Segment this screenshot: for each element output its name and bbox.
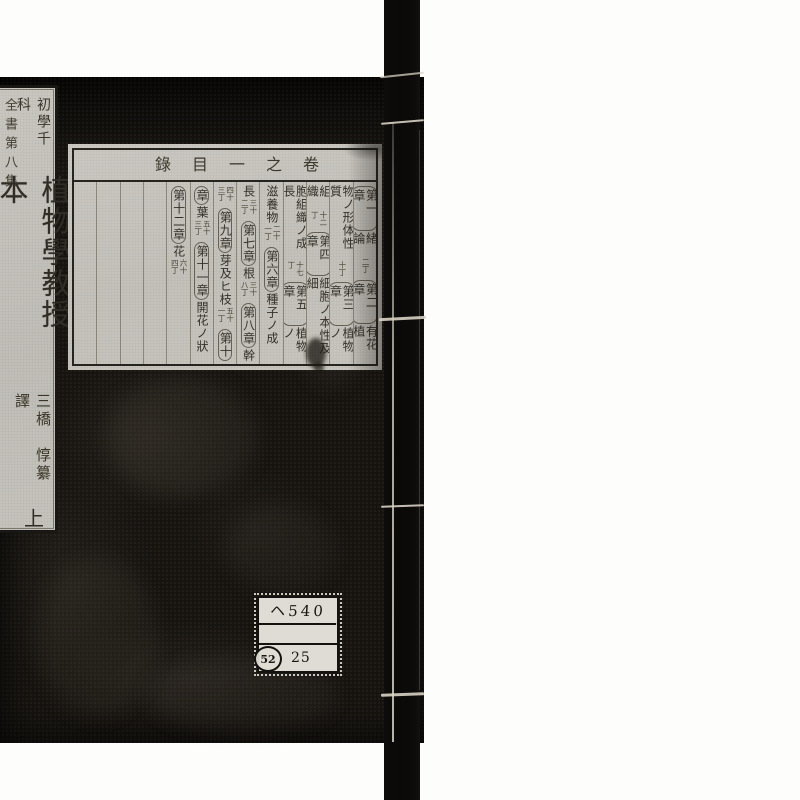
toc-title-text: 卷之一目錄	[155, 155, 340, 174]
toc-column-7: 四十三丁 第九章 芽及ヒ枝 五十一丁 第十	[213, 182, 236, 364]
author-translator: 三橋 惇纂譯	[12, 393, 54, 499]
toc-column-8: 章 葉 五十三丁 第十一章 開花ノ狀	[190, 182, 213, 364]
chapter-title: 有花植	[353, 325, 376, 364]
toc-column-1: 第一章 緒論 二丁 第二章 有花植	[353, 182, 376, 364]
chapter-title: 開花ノ狀	[195, 301, 208, 353]
chapter-token: 第八章	[241, 303, 256, 348]
toc-column-9: 第十二章 花 六十四丁	[166, 182, 189, 364]
toc-column-6: 長 三十二丁 第七章 根 三十八丁 第八章 幹	[236, 182, 259, 364]
chapter-token: 第二章	[353, 280, 376, 325]
toc-column-5: 滋養物 二十一丁 第六章 種子ノ成	[259, 182, 282, 364]
chapter-title: 胞組織ノ成長	[283, 185, 306, 260]
title-label-inner-border: 全書第八集 初學千科 植物學教授本 三橋 惇纂譯 上	[0, 89, 54, 529]
toc-label: 卷之一目錄 第一章 緒論 二丁 第二章 有花植 物ノ形体性質 十丁 第三章 植物…	[68, 144, 382, 370]
chapter-token: 第十二章	[171, 186, 186, 244]
toc-column-4: 胞組織ノ成長 十七丁 第五章 植物ノ	[283, 182, 306, 364]
worn-patch	[37, 557, 157, 717]
chapter-title: 物ノ形体性質	[329, 185, 352, 260]
chapter-token: 第四章	[306, 232, 329, 275]
page-note: 三十二丁	[240, 199, 257, 219]
chapter-title: 長	[242, 185, 255, 198]
page-note: 十七丁	[286, 261, 303, 280]
chapter-token: 第六章	[264, 247, 279, 292]
chapter-title: 花	[172, 245, 185, 258]
title-label-text-column: 初學千科 植物學教授本 三橋 惇纂譯 上	[15, 90, 51, 528]
title-label: 全書第八集 初學千科 植物學教授本 三橋 惇纂譯 上	[0, 85, 58, 533]
binding-thread-vertical	[392, 122, 394, 742]
toc-border: 卷之一目錄 第一章 緒論 二丁 第二章 有花植 物ノ形体性質 十丁 第三章 植物…	[72, 148, 378, 366]
call-number-bottom: 52 25	[259, 645, 337, 671]
page-note: 五十三丁	[193, 220, 210, 240]
worn-patch	[107, 377, 257, 497]
chapter-title: 葉	[195, 206, 208, 219]
chapter-title: 緒論	[353, 232, 376, 258]
chapter-title: 植物ノ	[329, 327, 352, 364]
page-note: 六十四丁	[170, 259, 187, 279]
book-title: 植物學教授本	[0, 175, 75, 357]
chapter-title: 幹	[242, 349, 255, 362]
page-note: 二丁	[361, 258, 370, 278]
chapter-token: 章	[194, 186, 209, 205]
toc-empty-column	[96, 182, 119, 364]
chapter-token: 第十	[218, 329, 233, 361]
call-number-top: ヘ540	[258, 598, 338, 625]
photograph-of-book-cover: 全書第八集 初學千科 植物學教授本 三橋 惇纂譯 上 卷之一目錄 第一章 緒論 …	[0, 0, 800, 800]
toc-empty-column	[74, 182, 96, 364]
chapter-title: 滋養物	[265, 185, 278, 224]
page-note: 三十八丁	[240, 281, 257, 301]
page-note: 二十一丁	[263, 225, 280, 245]
toc-empty-column	[143, 182, 166, 364]
call-number-value: 25	[291, 650, 311, 666]
chapter-token: 第五章	[283, 282, 306, 325]
toc-title: 卷之一目錄	[74, 150, 376, 182]
round-stamp: 52	[254, 646, 282, 672]
toc-column-2: 物ノ形体性質 十丁 第三章 植物ノ	[329, 182, 352, 364]
page-note: 十二丁	[310, 211, 327, 230]
chapter-token: 第十一章	[194, 242, 209, 300]
binding-strip-edge	[419, 130, 420, 690]
call-number-middle	[259, 625, 337, 645]
volume-mark: 上	[19, 508, 48, 528]
page-note: 五十一丁	[216, 307, 233, 327]
chapter-token: 第三章	[329, 282, 352, 325]
chapter-title: 組織	[306, 185, 329, 210]
worn-patch	[227, 507, 337, 592]
chapter-title: 細胞ノ本性及細	[306, 277, 329, 364]
toc-empty-column	[120, 182, 143, 364]
chapter-token: 第七章	[241, 221, 256, 266]
chapter-token: 第一章	[353, 186, 376, 231]
toc-column-3: 組織 十二丁 第四章 細胞ノ本性及細	[306, 182, 329, 364]
series-header: 初學千科	[13, 97, 53, 164]
chapter-token: 第九章	[218, 208, 233, 253]
call-number-sticker: ヘ540 52 25	[257, 596, 339, 673]
chapter-title: 根	[242, 267, 255, 280]
chapter-title: 芽及ヒ枝	[219, 254, 232, 306]
page-note: 十丁	[337, 261, 346, 280]
chapter-title: 種子ノ成	[265, 293, 278, 345]
toc-columns: 第一章 緒論 二丁 第二章 有花植 物ノ形体性質 十丁 第三章 植物ノ 組織 十…	[74, 182, 376, 364]
chapter-title: 植物ノ	[283, 327, 306, 364]
page-note: 四十三丁	[216, 186, 233, 206]
